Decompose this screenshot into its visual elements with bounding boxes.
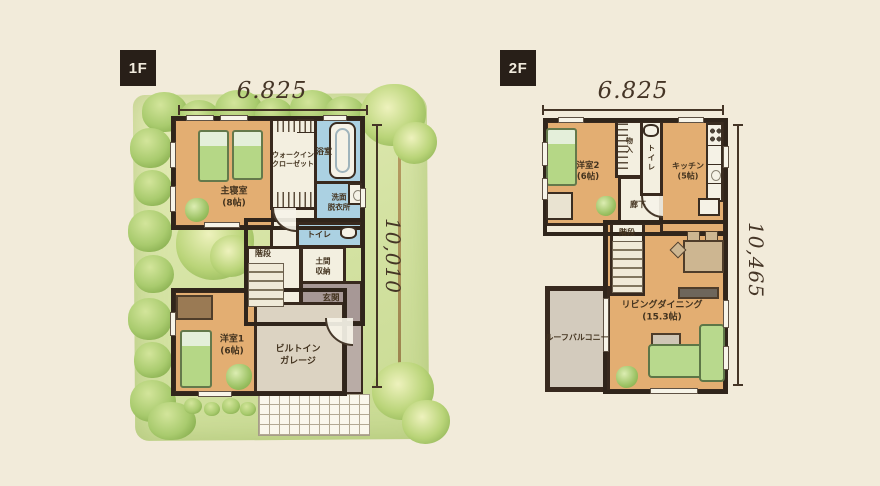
dimension-depth-2f: 10,465: [742, 210, 768, 310]
stairs-treads: [613, 242, 642, 292]
toilet-fixture: [340, 226, 357, 239]
sofa: [648, 344, 705, 378]
dimension-line-depth-1f: [376, 124, 378, 388]
hedge-bush: [204, 402, 220, 416]
window: [198, 391, 232, 397]
hedge-bush: [128, 210, 172, 252]
hedge-bush: [222, 398, 240, 414]
floor2-badge: 2F: [500, 50, 536, 86]
roof-balcony: [545, 286, 610, 392]
window: [220, 115, 248, 121]
window: [723, 346, 729, 370]
driveway: [258, 394, 370, 436]
closet-hanger-rail: [273, 121, 314, 132]
window: [360, 188, 366, 208]
dimension-depth-1f: 10,010: [379, 206, 405, 306]
dining-chair: [705, 231, 718, 241]
hedge-bush: [134, 170, 172, 206]
window: [170, 186, 176, 212]
toilet-fixture: [643, 124, 659, 137]
dimension-line-width-2f: [542, 109, 724, 111]
balcony-door-window: [603, 298, 609, 352]
window: [186, 115, 214, 121]
window: [170, 312, 176, 336]
floor1-badge: 1F: [120, 50, 156, 86]
window: [170, 142, 176, 168]
window: [204, 222, 240, 228]
closet-shelf: [618, 123, 628, 173]
hedge-bush: [240, 402, 256, 416]
room-doma-storage: [300, 246, 346, 284]
desk: [546, 192, 573, 220]
tv-board: [678, 287, 719, 299]
hedge-bush: [130, 128, 172, 168]
window: [723, 146, 729, 168]
dimension-line-width-1f: [178, 109, 368, 111]
bed: [546, 128, 577, 186]
dining-chair: [687, 231, 700, 241]
dimension-width-1f: 6.825: [202, 78, 342, 104]
stairs-treads: [249, 264, 283, 306]
floorplan-page: { "colors": { "background": "#f2ebda", "…: [0, 0, 880, 486]
window: [558, 117, 584, 123]
refrigerator: [698, 198, 720, 216]
closet-hanger-rail: [273, 192, 314, 207]
sofa-chaise: [699, 324, 725, 382]
bed: [198, 130, 229, 182]
window: [650, 388, 698, 394]
window: [723, 300, 729, 328]
window: [542, 178, 548, 200]
dimension-line-depth-2f: [737, 124, 739, 386]
dining-table: [683, 240, 724, 273]
desk: [176, 295, 213, 320]
bathtub: [329, 122, 356, 179]
bed: [232, 130, 263, 180]
tree: [393, 122, 437, 164]
hedge-bush: [128, 298, 172, 340]
hedge-bush: [134, 342, 172, 378]
room-garage: [254, 302, 345, 394]
window: [542, 142, 548, 166]
window: [323, 115, 347, 121]
floor2-plan: 6.825 10,465 2F 洋室2 (6帖) 物入 トイレ キッチン (5帖…: [500, 50, 800, 486]
floor1-plan: 6.825 10,010 1F 主寝室 (8帖) ウォークイン クローゼット 浴…: [120, 50, 430, 486]
window: [678, 117, 704, 123]
bed: [180, 330, 212, 388]
dimension-width-2f: 6.825: [563, 78, 703, 104]
hedge-bush: [134, 255, 174, 293]
hedge-bush: [184, 398, 202, 414]
stove: [707, 124, 722, 146]
tree: [402, 400, 450, 444]
kitchen-sink: [707, 164, 722, 184]
